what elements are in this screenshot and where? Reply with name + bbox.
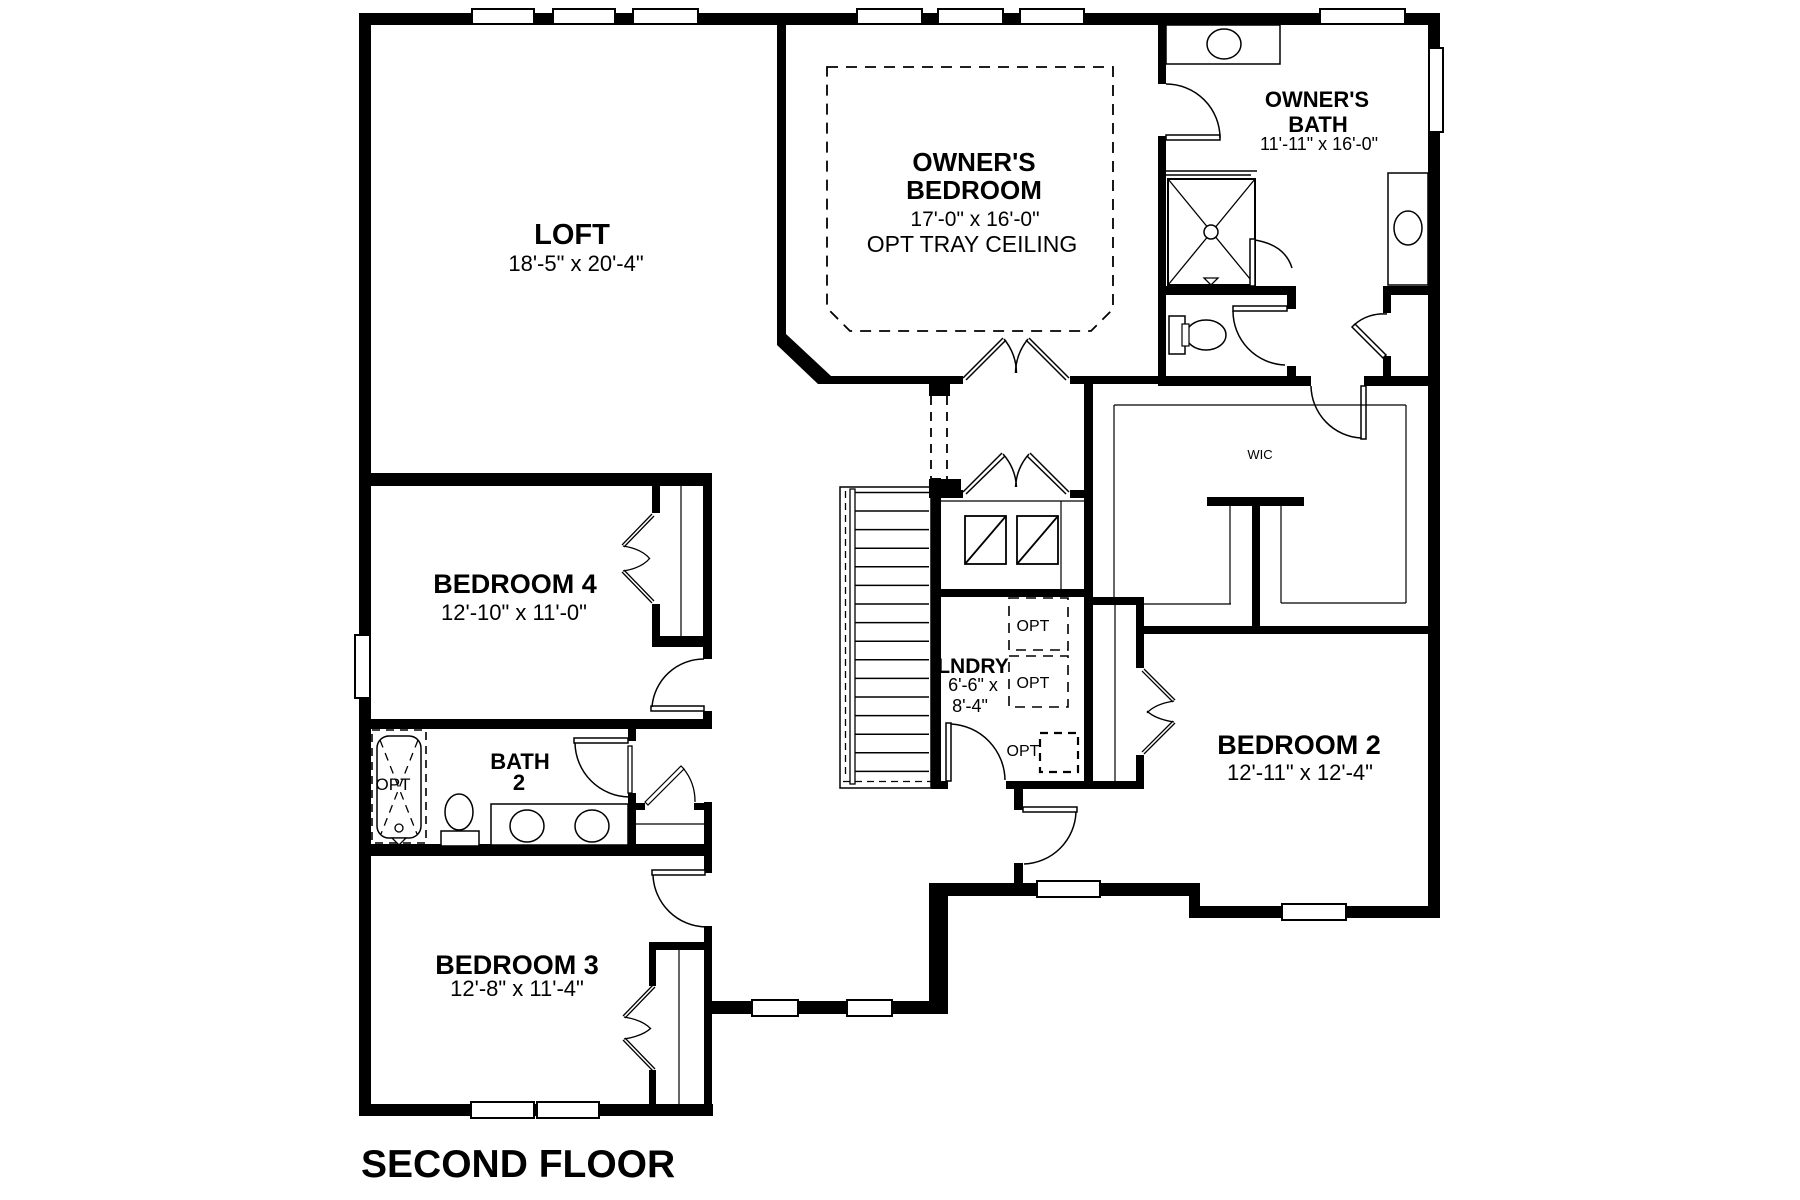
svg-text:6'-6" x: 6'-6" x <box>948 675 998 695</box>
svg-text:BEDROOM 4: BEDROOM 4 <box>433 569 597 599</box>
svg-text:12'-11" x 12'-4": 12'-11" x 12'-4" <box>1227 760 1373 785</box>
svg-text:WIC: WIC <box>1247 447 1272 462</box>
svg-text:OPT: OPT <box>376 775 411 794</box>
svg-text:OPT TRAY CEILING: OPT TRAY CEILING <box>867 231 1077 257</box>
svg-text:12'-8" x 11'-4": 12'-8" x 11'-4" <box>450 976 584 1001</box>
svg-text:BEDROOM: BEDROOM <box>906 175 1042 205</box>
svg-text:11'-11" x 16'-0": 11'-11" x 16'-0" <box>1260 134 1378 154</box>
svg-text:SECOND FLOOR: SECOND FLOOR <box>361 1143 675 1186</box>
svg-text:OPT: OPT <box>1017 618 1050 635</box>
svg-text:2: 2 <box>513 770 525 795</box>
svg-text:17'-0" x 16'-0": 17'-0" x 16'-0" <box>910 208 1039 231</box>
svg-text:OPT: OPT <box>1007 743 1040 760</box>
svg-text:8'-4": 8'-4" <box>952 696 988 716</box>
svg-text:LOFT: LOFT <box>534 219 610 251</box>
svg-text:12'-10" x 11'-0": 12'-10" x 11'-0" <box>441 600 587 625</box>
svg-text:18'-5" x 20'-4": 18'-5" x 20'-4" <box>508 251 643 276</box>
svg-text:OPT: OPT <box>1017 675 1050 692</box>
svg-text:OWNER'S: OWNER'S <box>912 147 1035 177</box>
svg-text:BEDROOM 2: BEDROOM 2 <box>1217 730 1381 760</box>
svg-text:OWNER'S: OWNER'S <box>1265 87 1369 112</box>
